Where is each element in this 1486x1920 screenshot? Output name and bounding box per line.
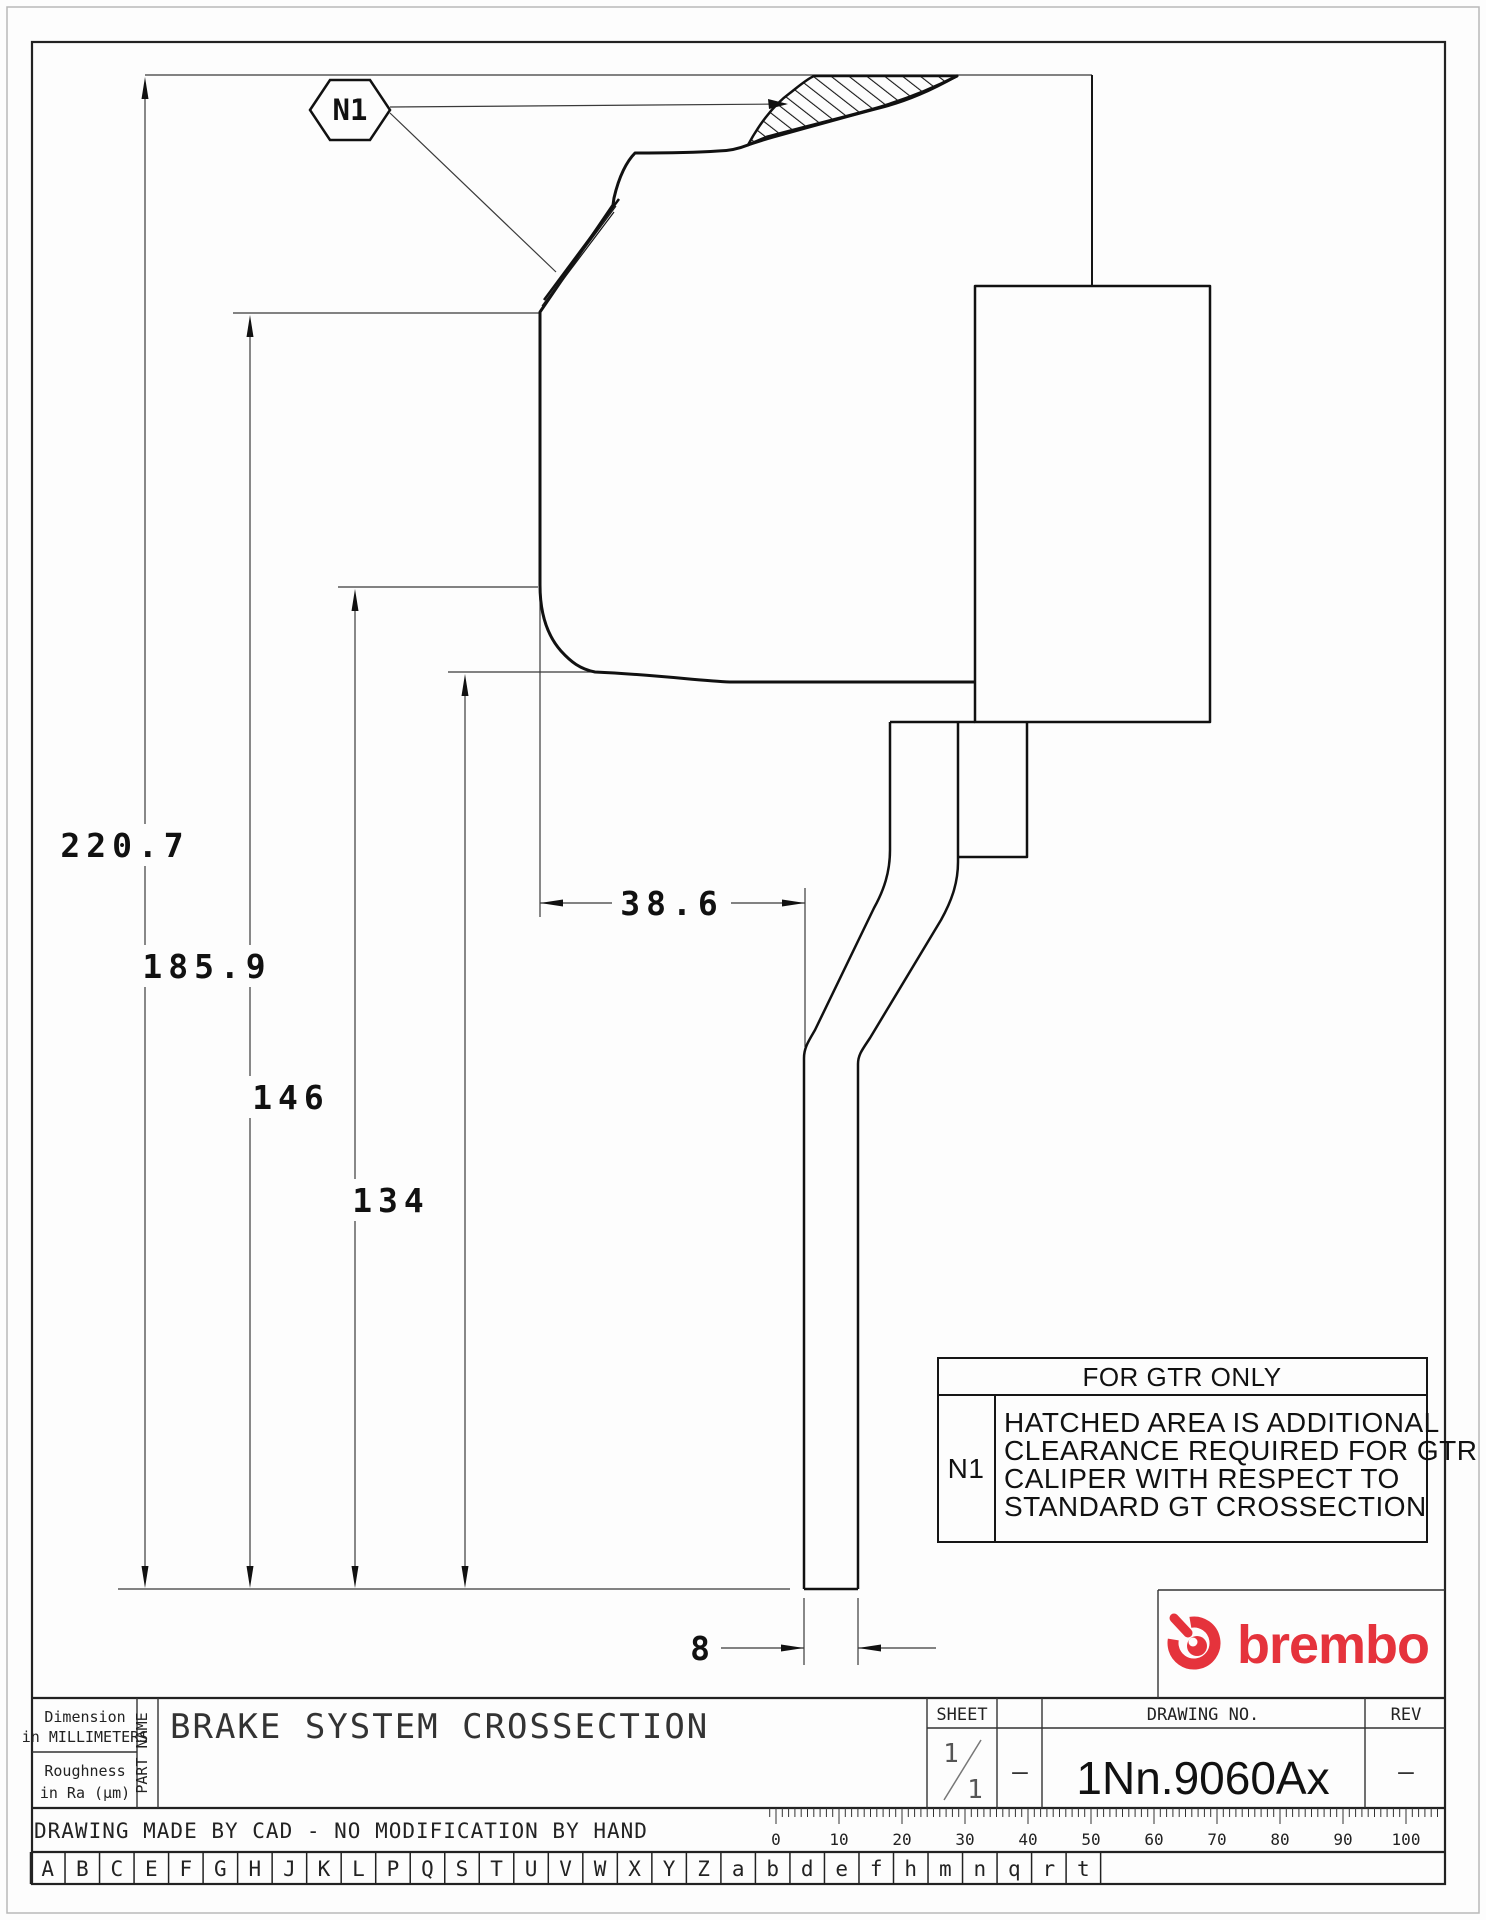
letter-cell: B bbox=[76, 1857, 89, 1881]
sheet-denominator: 1 bbox=[967, 1775, 983, 1805]
dim-8: 8 bbox=[690, 1629, 710, 1668]
letter-cell: S bbox=[456, 1857, 469, 1881]
letter-cell: K bbox=[318, 1857, 331, 1881]
note-header: FOR GTR ONLY bbox=[1082, 1362, 1281, 1392]
letter-cell: Z bbox=[697, 1857, 710, 1881]
dim-220.7: 220.7 bbox=[60, 826, 189, 865]
units-note-line1: Dimension bbox=[44, 1708, 125, 1726]
drawing-no-label: DRAWING NO. bbox=[1147, 1705, 1260, 1725]
ruler-label: 0 bbox=[771, 1830, 781, 1849]
cad-canvas: 220.7 185.9 146 134 38.6 8 N1 FOR GTR ON… bbox=[0, 0, 1486, 1920]
ruler-label: 50 bbox=[1081, 1830, 1100, 1849]
letter-cell: G bbox=[214, 1857, 227, 1881]
letter-cell: h bbox=[904, 1857, 917, 1881]
ruler-label: 30 bbox=[955, 1830, 974, 1849]
letter-cell: L bbox=[352, 1857, 365, 1881]
letter-cell: V bbox=[559, 1857, 572, 1881]
units-note-line2: in MILLIMETERS bbox=[22, 1728, 148, 1746]
brembo-emblem-hole bbox=[1189, 1638, 1198, 1647]
dim-38.6: 38.6 bbox=[620, 884, 723, 923]
note-ref: N1 bbox=[948, 1453, 985, 1484]
dim-185.9: 185.9 bbox=[142, 947, 271, 986]
letter-cell: H bbox=[249, 1857, 262, 1881]
letter-cell: P bbox=[387, 1857, 400, 1881]
letter-cell: r bbox=[1043, 1857, 1056, 1881]
dim-146: 146 bbox=[252, 1078, 330, 1117]
rev-label: REV bbox=[1391, 1705, 1422, 1725]
letter-cell: t bbox=[1077, 1857, 1090, 1881]
note-line: HATCHED AREA IS ADDITIONAL bbox=[1004, 1407, 1440, 1438]
letter-cell: F bbox=[180, 1857, 193, 1881]
roughness-note-line2: in Ra (μm) bbox=[40, 1784, 130, 1802]
letter-cell: A bbox=[41, 1857, 54, 1881]
dim-134: 134 bbox=[352, 1181, 430, 1220]
ruler-label: 100 bbox=[1392, 1830, 1421, 1849]
reference-letter-row: ABCEFGHJKLPQSTUVWXYZabdefhmnqrt bbox=[31, 1852, 1101, 1884]
brembo-wordmark: brembo bbox=[1237, 1615, 1429, 1675]
note-line: CALIPER WITH RESPECT TO bbox=[1004, 1463, 1400, 1494]
letter-cell: b bbox=[766, 1857, 779, 1881]
letter-cell: W bbox=[594, 1857, 607, 1881]
letter-cell: n bbox=[973, 1857, 986, 1881]
letter-cell: E bbox=[145, 1857, 158, 1881]
letter-cell: J bbox=[283, 1857, 296, 1881]
ruler-label: 40 bbox=[1018, 1830, 1037, 1849]
note-line: STANDARD GT CROSSECTION bbox=[1004, 1491, 1427, 1522]
letter-cell: a bbox=[732, 1857, 745, 1881]
drawing-no-value: 1Nn.9060Ax bbox=[1076, 1752, 1329, 1804]
letter-cell: T bbox=[490, 1857, 503, 1881]
letter-cell: X bbox=[628, 1857, 641, 1881]
sheet-numerator: 1 bbox=[943, 1739, 959, 1769]
letter-cell: e bbox=[835, 1857, 848, 1881]
letter-cell: q bbox=[1008, 1857, 1021, 1881]
letter-cell: U bbox=[525, 1857, 538, 1881]
part-name-title: BRAKE SYSTEM CROSSECTION bbox=[170, 1707, 709, 1747]
note-line: CLEARANCE REQUIRED FOR GTR bbox=[1004, 1435, 1478, 1466]
ruler-label: 90 bbox=[1333, 1830, 1352, 1849]
drawing-sheet: 220.7 185.9 146 134 38.6 8 N1 FOR GTR ON… bbox=[0, 0, 1486, 1920]
letter-cell: d bbox=[801, 1857, 814, 1881]
sheet-label: SHEET bbox=[936, 1705, 987, 1725]
ruler-label: 20 bbox=[892, 1830, 911, 1849]
ruler-label: 10 bbox=[829, 1830, 848, 1849]
cad-footer-note: DRAWING MADE BY CAD - NO MODIFICATION BY… bbox=[34, 1819, 648, 1843]
roughness-note-line1: Roughness bbox=[44, 1762, 125, 1780]
ruler-label: 70 bbox=[1207, 1830, 1226, 1849]
callout-text: N1 bbox=[333, 93, 368, 127]
part-name-label: PART NAME bbox=[133, 1712, 151, 1793]
letter-cell: f bbox=[870, 1857, 883, 1881]
sheet-dash: – bbox=[1012, 1757, 1028, 1787]
rev-value: – bbox=[1398, 1757, 1414, 1787]
letter-cell: C bbox=[110, 1857, 123, 1881]
letter-cell: Q bbox=[421, 1857, 434, 1881]
letter-cell: Y bbox=[663, 1857, 676, 1881]
letter-cell: m bbox=[939, 1857, 952, 1881]
ruler-label: 80 bbox=[1270, 1830, 1289, 1849]
ruler-label: 60 bbox=[1144, 1830, 1163, 1849]
